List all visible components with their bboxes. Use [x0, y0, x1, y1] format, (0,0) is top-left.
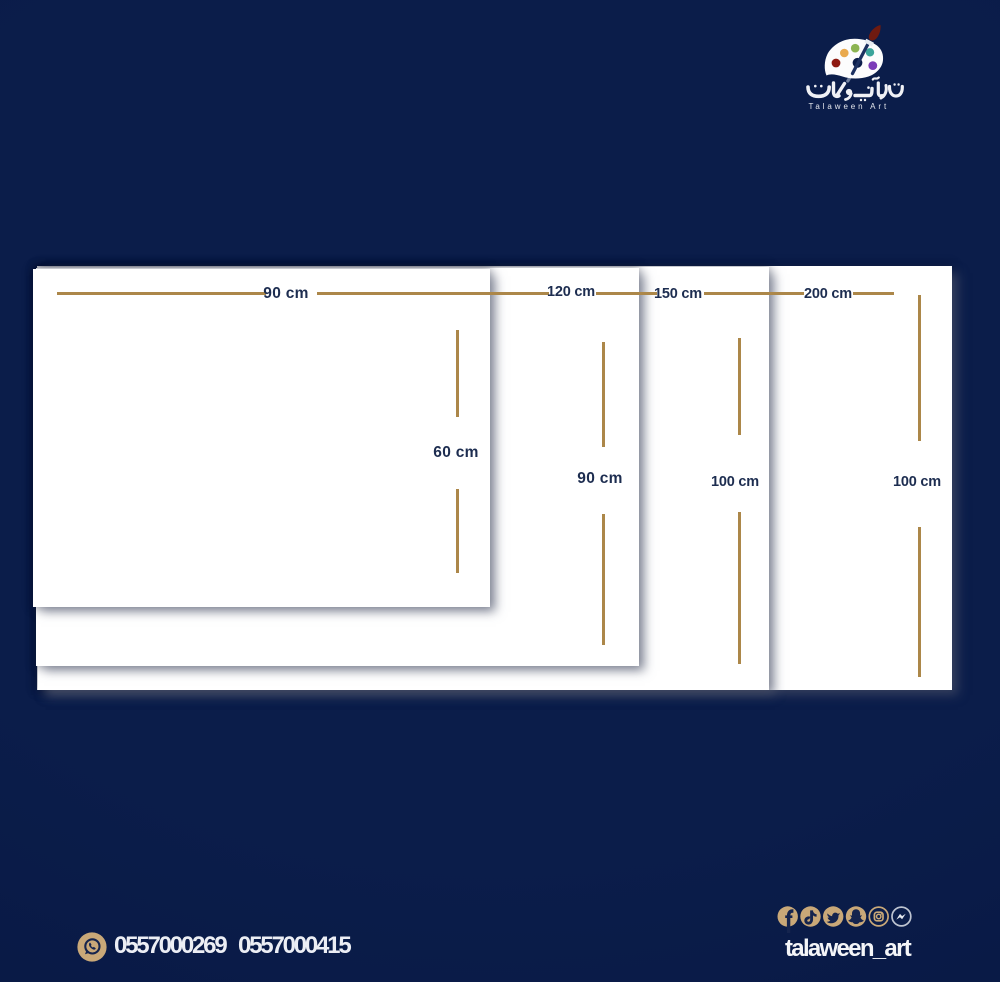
svg-text:Talaween Art: Talaween Art — [809, 102, 890, 111]
